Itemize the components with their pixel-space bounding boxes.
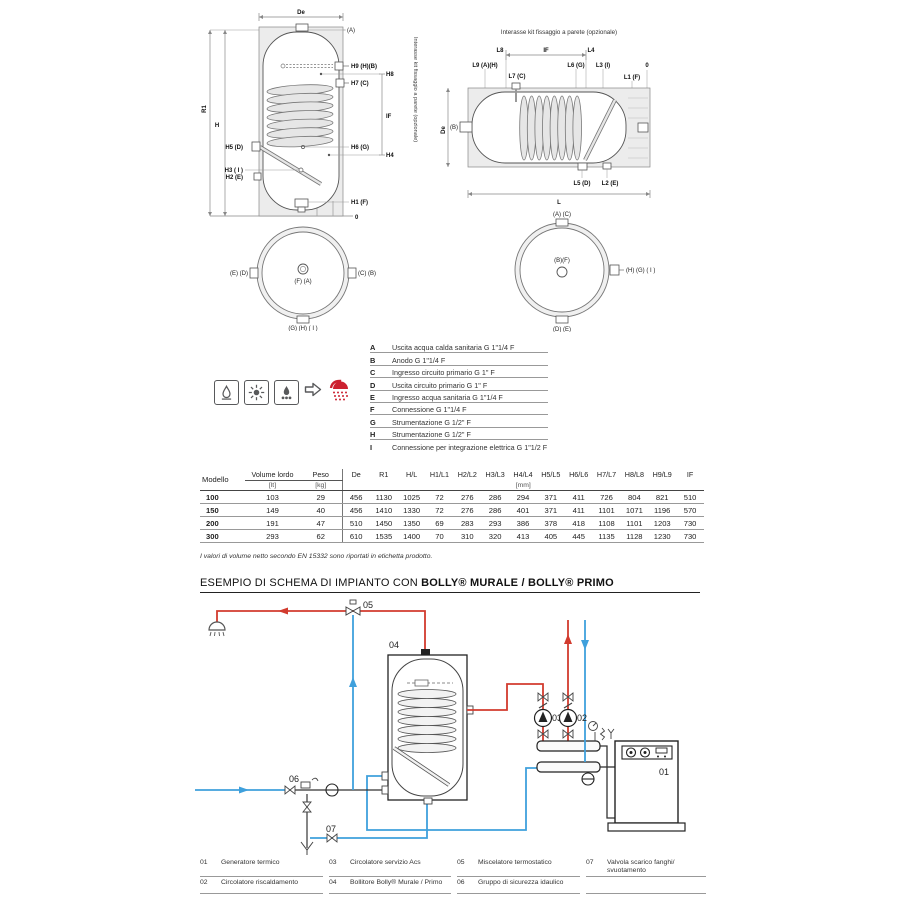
gas-flame-icon [214, 380, 239, 405]
port-a [296, 24, 308, 31]
return-manifold [537, 762, 600, 772]
col-dim: H4/L4 [509, 469, 537, 481]
legend-row: FConnessione G 1"1/4 F [370, 403, 548, 415]
wall-kit-title: Interasse kit fissaggio a parete (opzion… [501, 29, 617, 36]
legend-item: 01Generatore termico [200, 857, 323, 877]
label-h6: H6 (G) [351, 145, 369, 151]
label-h7: H7 (C) [351, 81, 369, 87]
legend-key: G [370, 418, 392, 427]
dim-label-r1: R1 [202, 105, 208, 113]
wall-kit-note: Interasse kit fissaggio a parete (opzion… [412, 37, 418, 142]
port-right [610, 265, 619, 275]
cell-model: 100 [200, 491, 245, 504]
unit-mm: [mm] [342, 481, 704, 491]
drain-valve [327, 834, 337, 842]
legend-row: GStrumentazione G 1/2" F [370, 415, 548, 427]
legend-key: E [370, 393, 392, 402]
port-l7 [512, 83, 520, 89]
mixing-valve [346, 600, 360, 615]
pipe-boiler-flow [600, 746, 615, 818]
label-ghi: (G) (H) ( I ) [288, 326, 317, 331]
legend-row: EIngresso acqua sanitaria G 1"1/4 F [370, 391, 548, 403]
schematic-legend: 01Generatore termico 03Circolatore servi… [200, 857, 705, 894]
label-l9: L9 (A)(H) [472, 63, 497, 69]
port-l5 [578, 163, 587, 170]
solid-fuel-icon [274, 380, 299, 405]
table-row: 200 19147 510145013506928329338637841811… [200, 517, 704, 530]
flow-manifold [537, 741, 600, 751]
cell-model: 300 [200, 530, 245, 543]
hydraulic-schematic: 06 07 0 [195, 598, 705, 856]
legend-item-empty [586, 877, 706, 894]
label-h9: H9 (H)(B) [351, 64, 377, 70]
legend-desc: Strumentazione G 1/2" F [392, 430, 471, 439]
label-h8: H8 [386, 72, 394, 78]
callout-02: 02 [577, 713, 587, 723]
col-dim: H6/L6 [565, 469, 593, 481]
energy-sources [214, 377, 354, 407]
legend-key: C [370, 368, 392, 377]
port-h5 [252, 142, 260, 151]
boiler [608, 741, 685, 831]
dimensions-table: Modello Volume lordo Peso De R1 H/L H1/L… [200, 469, 704, 543]
label-h2: H2 (E) [226, 175, 243, 181]
legend-key: B [370, 356, 392, 365]
dim-label-h: H [215, 123, 219, 129]
legend-desc: Uscita acqua calda sanitaria G 1"1/4 F [392, 343, 514, 352]
label-if-h: IF [543, 48, 549, 54]
callout-05: 05 [363, 600, 373, 610]
cell-model: 200 [200, 517, 245, 530]
unit-kg: [kg] [300, 481, 342, 491]
col-dim: R1 [370, 469, 398, 481]
port-h1 [295, 199, 308, 207]
callout-01: 01 [659, 767, 669, 777]
col-dim: H2/L2 [453, 469, 481, 481]
dim-label-de: De [297, 10, 305, 16]
legend-key: A [370, 343, 392, 352]
col-peso: Peso [300, 469, 342, 481]
dim-label-l: L [557, 200, 561, 206]
port-left [250, 268, 258, 278]
col-dim: H/L [398, 469, 426, 481]
legend-desc: Ingresso circuito primario G 1" F [392, 368, 495, 377]
label-l2: L2 (E) [602, 181, 619, 187]
cell-model: 150 [200, 504, 245, 517]
legend-desc: Strumentazione G 1/2" F [392, 418, 471, 427]
label-a: (A) [347, 28, 355, 34]
port-l1 [638, 123, 648, 132]
label-h1: H1 (F) [351, 200, 368, 206]
vertical-tank-diagram: R1 H De (A) H9 (H)(B) [193, 3, 448, 225]
pipe-primary-flow [467, 684, 543, 710]
legend-item: 04Bollitore Bolly® Murale / Primo [329, 877, 451, 894]
label-l4: L4 [587, 48, 595, 54]
legend-item: 06Gruppo di sicurezza idaulico [457, 877, 580, 894]
storage-tank [382, 649, 473, 804]
label-l5: L5 (D) [574, 181, 591, 187]
label-l3: L3 (I) [596, 63, 610, 69]
shower-icon [327, 377, 354, 407]
legend-item: 02Circolatore riscaldamento [200, 877, 323, 894]
port-h2 [254, 173, 261, 180]
table-row: 150 14940 456141013307227628640137141111… [200, 504, 704, 517]
legend-item: 05Miscelatore termostatico [457, 857, 580, 877]
callout-04: 04 [389, 640, 399, 650]
legend-key: D [370, 381, 392, 390]
label-ed: (E) (D) [230, 271, 248, 277]
shower-symbol [209, 622, 225, 636]
flow-arrow [349, 677, 357, 687]
legend-desc: Ingresso acqua sanitaria G 1"1/4 F [392, 393, 503, 402]
port-right [348, 268, 356, 278]
label-l8: L8 [496, 48, 504, 54]
col-dim: H1/L1 [426, 469, 454, 481]
label-h3: H3 ( I ) [225, 168, 243, 174]
col-dim: H3/L3 [481, 469, 509, 481]
label-hgi: (H) (G) ( I ) [626, 268, 655, 274]
flow-arrow [581, 640, 589, 650]
flow-arrow [239, 787, 249, 794]
section-title: ESEMPIO DI SCHEMA DI IMPIANTO CON BOLLY®… [200, 577, 700, 593]
top-view-vertical: (E) (D) (C) (B) (F) (A) (G) (H) ( I ) [228, 216, 378, 331]
legend-key: I [370, 443, 392, 452]
col-dim: H9/L9 [648, 469, 676, 481]
flow-arrow [278, 608, 288, 615]
section-title-bold: BOLLY® MURALE / BOLLY® PRIMO [421, 577, 614, 589]
datasheet-page: R1 H De (A) H9 (H)(B) [0, 0, 900, 900]
label-de2: (D) (E) [553, 327, 571, 332]
sun-icon [244, 380, 269, 405]
legend-desc: Uscita circuito primario G 1" F [392, 381, 487, 390]
section-title-regular: ESEMPIO DI SCHEMA DI IMPIANTO CON [200, 577, 421, 589]
unit-lt: [lt] [245, 481, 300, 491]
callout-06: 06 [289, 774, 299, 784]
connections-legend: AUscita acqua calda sanitaria G 1"1/4 F … [370, 341, 548, 452]
label-b: (B) [450, 125, 458, 131]
legend-key: F [370, 405, 392, 414]
horizontal-tank-diagram: Interasse kit fissaggio a parete (opzion… [440, 22, 698, 217]
legend-item: 03Circolatore servizio Acs [329, 857, 451, 877]
legend-row: CIngresso circuito primario G 1" F [370, 366, 548, 378]
port-bottom [556, 316, 568, 323]
port-h9 [335, 62, 343, 70]
col-dim: De [342, 469, 370, 481]
label-zero-h: 0 [645, 63, 649, 69]
label-l7: L7 (C) [509, 74, 526, 80]
legend-item: 07Valvola scarico fanghi/ svuotamento [586, 857, 706, 877]
label-cb: (C) (B) [358, 271, 376, 277]
port-bottom [297, 316, 309, 323]
port-top [556, 219, 568, 226]
table-row: 100 10329 456113010257227628629437141172… [200, 491, 704, 504]
col-modello: Modello [200, 469, 245, 491]
legend-row: HStrumentazione G 1/2" F [370, 428, 548, 440]
legend-row: IConnessione per integrazione elettrica … [370, 440, 548, 451]
label-fa: (F) (A) [294, 279, 311, 285]
label-l6: L6 (G) [567, 63, 584, 69]
legend-row: AUscita acqua calda sanitaria G 1"1/4 F [370, 341, 548, 353]
legend-desc: Connessione G 1"1/4 F [392, 405, 466, 414]
legend-key: H [370, 430, 392, 439]
legend-row: BAnodo G 1"1/4 F [370, 353, 548, 365]
port-h7 [336, 79, 344, 87]
legend-desc: Connessione per integrazione elettrica G… [392, 443, 547, 452]
col-dim: H5/L5 [537, 469, 565, 481]
callout-07: 07 [326, 824, 336, 834]
table-row: 300 29362 610153514007031032041340544511… [200, 530, 704, 543]
arrow-right-icon [304, 382, 322, 402]
port-b [460, 122, 472, 132]
col-dim: H8/L8 [620, 469, 648, 481]
port-l2 [603, 163, 611, 169]
col-dim: IF [676, 469, 704, 481]
flow-arrow [564, 634, 572, 644]
gauge-relief-group [589, 722, 615, 742]
legend-desc: Anodo G 1"1/4 F [392, 356, 445, 365]
label-if: IF [386, 114, 392, 120]
table-footnote: I valori di volume netto secondo EN 1533… [200, 553, 700, 560]
col-volume: Volume lordo [245, 469, 300, 481]
label-h4: H4 [386, 153, 394, 159]
label-bf: (B)(F) [554, 258, 570, 264]
dim-label-de-h: De [441, 126, 447, 134]
label-ac: (A) (C) [553, 212, 571, 218]
col-dim: H7/L7 [593, 469, 621, 481]
label-h5: H5 (D) [225, 145, 243, 151]
top-view-horizontal: (A) (C) (B)(F) (H) (G) ( I ) (D) (E) [490, 210, 655, 332]
legend-row: DUscita circuito primario G 1" F [370, 378, 548, 390]
label-l1: L1 (F) [624, 75, 640, 81]
